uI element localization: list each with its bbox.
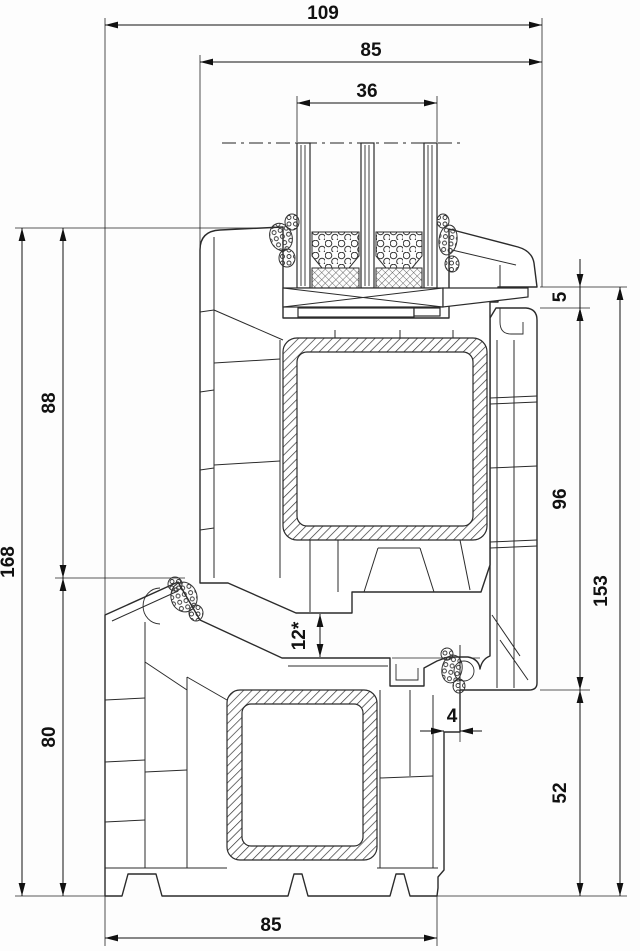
frame-reinforcement-inner [242,704,363,846]
sash-reinforcement-inner [297,352,473,526]
dim-80-label: 80 [39,726,60,747]
spacer-sealant [376,268,422,288]
spacer-sealant [312,268,359,288]
dim-168-label: 168 [0,546,19,578]
dim-88-label: 88 [39,392,60,413]
dim-85-bottom-label: 85 [260,915,282,936]
dim-5-label: 5 [550,291,571,302]
dim-85-top-label: 85 [360,40,382,61]
dim-96-label: 96 [550,488,571,509]
dim-52-label: 52 [550,782,571,803]
dim-4-label: 4 [447,706,458,727]
technical-drawing-page: 109 85 36 168 88 80 5 96 [0,0,640,951]
window-profile-cross-section: 109 85 36 168 88 80 5 96 [0,0,640,951]
dim-36-label: 36 [356,81,377,102]
dim-153-label: 153 [591,575,612,607]
dim-12-label: 12* [289,621,310,650]
glazing-packer [298,308,414,317]
dim-109-label: 109 [307,3,339,24]
glazing-packer [414,308,440,316]
